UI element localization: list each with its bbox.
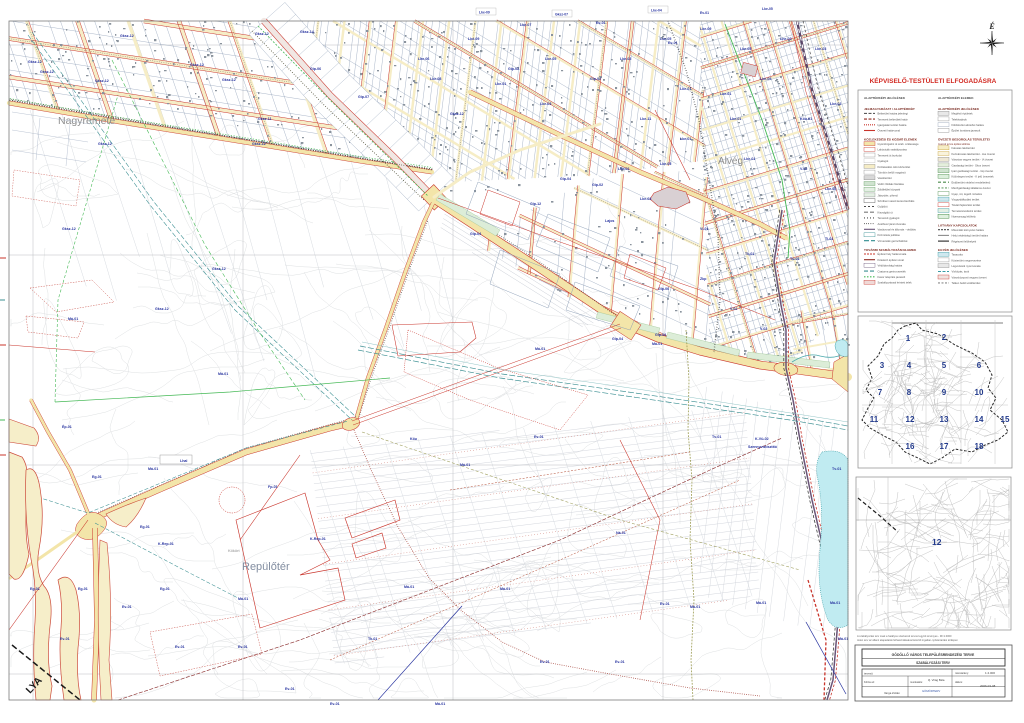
svg-text:EGYÉB JELÖLÉSEK: EGYÉB JELÖLÉSEK — [938, 247, 969, 252]
svg-text:Ev-01: Ev-01 — [238, 645, 248, 649]
svg-text:Ná-01: Ná-01 — [616, 531, 626, 535]
svg-text:Ép-01: Ép-01 — [62, 424, 72, 429]
svg-text:Lke-03: Lke-03 — [640, 197, 651, 201]
svg-text:Ev-01: Ev-01 — [615, 660, 625, 664]
svg-text:Má-01: Má-01 — [148, 467, 158, 471]
svg-text:Lke-01: Lke-01 — [744, 157, 755, 161]
svg-text:Lke-01: Lke-01 — [680, 87, 691, 91]
svg-text:Lke-06: Lke-06 — [418, 57, 429, 61]
svg-text:Eg-01: Eg-01 — [140, 525, 150, 529]
svg-text:Ev-01: Ev-01 — [60, 637, 70, 641]
svg-text:Fp-01: Fp-01 — [268, 485, 278, 489]
svg-text:Lke-09: Lke-09 — [468, 37, 479, 41]
svg-text:Ti-01: Ti-01 — [825, 237, 833, 241]
svg-text:ALAPTÉRKÉPI JELÖLÉSEK: ALAPTÉRKÉPI JELÖLÉSEK — [864, 95, 906, 100]
svg-text:Övezeti határvonal: Övezeti határvonal — [878, 129, 901, 133]
svg-text:Gazdasági terület - Gksz öveze: Gazdasági terület - Gksz övezet — [952, 163, 990, 167]
svg-text:8: 8 — [907, 388, 912, 397]
svg-text:Lke-01: Lke-01 — [680, 137, 691, 141]
svg-text:Gip-06: Gip-06 — [310, 67, 321, 71]
svg-text:Kiszolgáló út: Kiszolgáló út — [878, 210, 893, 214]
svg-text:V-02: V-02 — [760, 327, 767, 331]
svg-text:Védő zöldsáv fásítása: Védő zöldsáv fásítása — [878, 182, 905, 186]
svg-text:Gip-07: Gip-07 — [358, 95, 369, 99]
svg-text:Eg-01: Eg-01 — [160, 587, 170, 591]
svg-text:ÖVEZETI BESOROLÁS TERÜLETEI: ÖVEZETI BESOROLÁS TERÜLETEI — [938, 137, 990, 142]
svg-text:10: 10 — [975, 388, 984, 397]
svg-text:Lke-02: Lke-02 — [830, 102, 841, 106]
svg-text:Gip-06: Gip-06 — [658, 287, 669, 291]
svg-text:Má-01: Má-01 — [652, 342, 662, 346]
svg-text:Köu-01: Köu-01 — [800, 117, 812, 121]
svg-text:Lke-05: Lke-05 — [762, 7, 773, 11]
svg-text:Tervezett út burkolat: Tervezett út burkolat — [878, 153, 902, 157]
svg-text:Má-01: Má-01 — [756, 601, 766, 605]
svg-text:Ev-01: Ev-01 — [596, 21, 606, 25]
svg-text:Nyersanyag lelőhely: Nyersanyag lelőhely — [952, 215, 977, 219]
svg-text:Eg-01: Eg-01 — [78, 587, 88, 591]
svg-text:TOVÁBBI SZABÁLYOZÁSI ELEMEK: TOVÁBBI SZABÁLYOZÁSI ELEMEK — [864, 247, 917, 252]
svg-text:Gksz-12: Gksz-12 — [95, 79, 109, 83]
svg-text:Gksz-12: Gksz-12 — [190, 63, 204, 67]
svg-text:Lke-05: Lke-05 — [660, 162, 671, 166]
svg-text:Lke-08: Lke-08 — [430, 77, 441, 81]
svg-text:Má-01: Má-01 — [838, 637, 848, 641]
svg-text:9: 9 — [942, 388, 947, 397]
svg-text:Körös-sz:: Körös-sz: — [864, 680, 875, 684]
svg-text:6: 6 — [977, 361, 982, 370]
svg-text:Lke-01: Lke-01 — [495, 82, 506, 86]
svg-text:Gksz-12: Gksz-12 — [28, 60, 42, 64]
svg-text:Lke-02: Lke-02 — [618, 167, 629, 171]
svg-text:Tervezett gyalogút: Tervezett gyalogút — [878, 216, 900, 220]
svg-text:Gksz-12: Gksz-12 — [222, 78, 236, 82]
svg-text:Gksz-14: Gksz-14 — [300, 30, 314, 34]
svg-text:14: 14 — [975, 415, 984, 424]
svg-text:Telken belüli védőterület: Telken belüli védőterület — [952, 281, 981, 285]
svg-text:K-Vü-02: K-Vü-02 — [755, 437, 769, 441]
svg-text:Közműsáv jelölése: Közműsáv jelölése — [878, 233, 901, 237]
svg-text:Gksz-12: Gksz-12 — [252, 142, 266, 146]
svg-text:Gksz-12: Gksz-12 — [450, 112, 464, 116]
svg-text:Légvezeték nyomvonala: Légvezeték nyomvonala — [952, 264, 981, 268]
svg-text:Lke-09: Lke-09 — [700, 27, 711, 31]
svg-text:Nagyremete: Nagyremete — [58, 115, 115, 127]
svg-text:Má-01: Má-01 — [500, 587, 510, 591]
svg-text:Lke-01: Lke-01 — [720, 92, 731, 96]
svg-text:Belterület határa jelenlegi: Belterület határa jelenlegi — [878, 112, 909, 116]
svg-text:Lke-09: Lke-09 — [479, 11, 490, 15]
svg-text:Eg-01: Eg-01 — [30, 587, 40, 591]
svg-text:Tömbön belüli magánút: Tömbön belüli magánút — [878, 171, 906, 175]
svg-text:Szennyvíztisztító: Szennyvíztisztító — [748, 445, 778, 449]
svg-text:Lke-03: Lke-03 — [620, 57, 631, 61]
svg-text:7: 7 — [878, 388, 883, 397]
svg-text:Tv-01: Tv-01 — [832, 467, 841, 471]
svg-text:Gksz-11: Gksz-11 — [258, 117, 272, 121]
svg-text:Zkp: Zkp — [700, 277, 707, 281]
svg-text:LÁTVÁNY KAPCSOLATOK: LÁTVÁNY KAPCSOLATOK — [938, 223, 978, 228]
svg-text:Játszótér, pihenő: Játszótér, pihenő — [878, 193, 899, 197]
svg-text:Alvég: Alvég — [718, 156, 743, 167]
svg-text:Gip-02: Gip-02 — [508, 67, 519, 71]
svg-text:Védőtávolság határa: Védőtávolság határa — [878, 264, 903, 268]
svg-text:Lhal: Lhal — [180, 459, 187, 463]
svg-text:Tv-01: Tv-01 — [712, 435, 721, 439]
svg-text:11: 11 — [870, 415, 879, 424]
svg-text:Má-01: Má-01 — [460, 463, 470, 467]
svg-text:2006-03-08: 2006-03-08 — [980, 684, 996, 688]
svg-text:ALAPTÉRKÉPI ELEMEK: ALAPTÉRKÉPI ELEMEK — [938, 95, 974, 100]
svg-text:Meglévő épületek: Meglévő épületek — [952, 112, 974, 116]
svg-text:Közterület megnevezése: Közterület megnevezése — [952, 258, 982, 262]
svg-text:4: 4 — [907, 361, 912, 370]
svg-text:Tk-01: Tk-01 — [745, 252, 754, 256]
svg-text:Szintbeni vasúti kereszteződés: Szintbeni vasúti kereszteződés — [878, 199, 916, 203]
svg-text:Telekhatárok: Telekhatárok — [952, 117, 968, 121]
svg-text:Lke-01: Lke-01 — [730, 117, 741, 121]
svg-text:ifj. Virág Béla: ifj. Virág Béla — [928, 678, 945, 682]
svg-text:Ev-01: Ev-01 — [700, 11, 709, 15]
svg-text:Má-01: Má-01 — [404, 585, 414, 589]
svg-text:Vasútterület: Vasútterület — [878, 176, 892, 180]
svg-text:Gksz-12: Gksz-12 — [98, 142, 112, 146]
svg-text:Lke-08: Lke-08 — [825, 187, 836, 191]
svg-text:Ev-01: Ev-01 — [330, 702, 340, 706]
svg-text:5: 5 — [942, 361, 947, 370]
svg-text:A szabályozási terv csak a hat: A szabályozási terv csak a hatályos szer… — [857, 634, 952, 638]
svg-text:13: 13 — [940, 415, 949, 424]
svg-text:GÖMÖRTERV: GÖMÖRTERV — [922, 689, 940, 693]
svg-text:1:4.000: 1:4.000 — [985, 671, 995, 675]
svg-text:munkatárs:: munkatárs: — [910, 680, 923, 684]
svg-text:12: 12 — [932, 537, 942, 547]
svg-text:Ev-01: Ev-01 — [175, 645, 185, 649]
svg-text:Gksz-12: Gksz-12 — [255, 32, 269, 36]
svg-text:Eg-01: Eg-01 — [92, 475, 102, 479]
svg-text:Má-01: Má-01 — [435, 702, 445, 706]
svg-text:Tavacska: Tavacska — [952, 253, 964, 257]
svg-text:tervező:: tervező: — [864, 672, 874, 676]
svg-text:Csatorna gerincvezeték: Csatorna gerincvezeték — [878, 269, 907, 273]
svg-text:Gip-04: Gip-04 — [612, 337, 623, 341]
svg-text:Közlekedési célú közterület: Közlekedési célú közterület — [878, 165, 911, 169]
svg-text:Má-01: Má-01 — [690, 605, 700, 609]
svg-text:Kertvárosias lakóterület - Lke: Kertvárosias lakóterület - Lke övezet — [952, 152, 996, 156]
svg-text:Jelen terv az állami alapadato: Jelen terv az állami alapadatok felhaszn… — [857, 638, 958, 642]
svg-text:Városias vegyes terület - Vt ö: Városias vegyes terület - Vt övezet — [952, 158, 994, 162]
svg-text:Lke-03: Lke-03 — [815, 47, 826, 51]
svg-text:Helyi védettségű terület határ: Helyi védettségű terület határa — [952, 234, 989, 238]
svg-text:Zöldfelület közpark: Zöldfelület közpark — [878, 188, 901, 192]
svg-text:Ev-01: Ev-01 — [668, 41, 678, 45]
svg-text:Kötelező építési vonal: Kötelező építési vonal — [878, 258, 905, 262]
svg-text:3: 3 — [880, 361, 885, 370]
svg-text:Ev-01: Ev-01 — [534, 435, 544, 439]
svg-text:Vízgazdálkodási terület: Vízgazdálkodási terület — [952, 198, 980, 202]
svg-text:Ev-01: Ev-01 — [660, 602, 670, 606]
svg-text:Lke-11: Lke-11 — [640, 117, 651, 121]
svg-text:Má-01: Má-01 — [830, 601, 840, 605]
svg-text:Vízfolyás, árok: Vízfolyás, árok — [952, 270, 970, 274]
svg-text:Régészeti lelőhelyek: Régészeti lelőhelyek — [952, 239, 977, 243]
svg-text:K-Rep-01: K-Rep-01 — [310, 537, 326, 541]
svg-text:Városközponti vegyes övezet: Városközponti vegyes övezet — [952, 275, 987, 279]
svg-text:Természetvédelmi terület: Természetvédelmi terület — [952, 209, 982, 213]
svg-text:GÖDÖLLŐ VÁROS TELEPÜLÉSRENDEZÉ: GÖDÖLLŐ VÁROS TELEPÜLÉSRENDEZÉSI TERVE — [892, 652, 975, 657]
svg-text:Lke-03: Lke-03 — [540, 102, 551, 106]
svg-text:Gip-04: Gip-04 — [560, 177, 571, 181]
svg-text:Szabályozással érintett telek: Szabályozással érintett telek — [878, 281, 913, 285]
svg-text:V-02: V-02 — [730, 307, 737, 311]
svg-text:Tü-01: Tü-01 — [790, 257, 800, 261]
svg-text:K-Rep-01: K-Rep-01 — [158, 542, 174, 546]
svg-text:Lke-05: Lke-05 — [760, 77, 771, 81]
svg-text:Köu: Köu — [410, 437, 417, 441]
svg-text:Lakóutcák szabályozása: Lakóutcák szabályozása — [878, 148, 908, 152]
svg-text:Vi-01: Vi-01 — [700, 227, 709, 231]
svg-text:Ev-01: Ev-01 — [122, 605, 132, 609]
svg-text:Fasor telepítés javasolt: Fasor telepítés javasolt — [878, 275, 906, 279]
svg-text:Lke-05: Lke-05 — [545, 57, 556, 61]
svg-text:Lke-05: Lke-05 — [740, 47, 751, 51]
svg-text:Kökört: Kökört — [228, 548, 240, 553]
svg-text:Gyűjtőút: Gyűjtőút — [878, 205, 888, 209]
svg-text:V-02: V-02 — [800, 167, 807, 171]
svg-text:Lhe-03: Lhe-03 — [780, 37, 792, 41]
svg-text:Lke-04: Lke-04 — [651, 9, 662, 13]
svg-text:Gyorsforgalmi út szab. széless: Gyorsforgalmi út szab. szélessége — [878, 142, 920, 146]
svg-text:JELMAGYARÁZAT / ALAPTÉRKÉP: JELMAGYARÁZAT / ALAPTÉRKÉP — [864, 106, 915, 111]
svg-text:Vasútvonal és állomás - védőtá: Vasútvonal és állomás - védőtáv — [878, 228, 917, 232]
svg-text:Gksz-12: Gksz-12 — [212, 267, 226, 271]
svg-text:15: 15 — [1001, 415, 1010, 424]
svg-text:Má-01: Má-01 — [535, 347, 545, 351]
svg-text:méretarány:: méretarány: — [955, 671, 969, 675]
svg-text:Ipari gazdasági terület - Gip: Ipari gazdasági terület - Gip övezet — [952, 169, 994, 173]
svg-text:Lajos: Lajos — [605, 219, 614, 223]
svg-text:Tervezett belterületi határ: Tervezett belterületi határ — [878, 117, 908, 121]
svg-text:1: 1 — [906, 334, 911, 343]
svg-text:Gksz-07: Gksz-07 — [555, 13, 568, 17]
svg-text:Ev-01: Ev-01 — [285, 687, 295, 691]
svg-text:Gip-04: Gip-04 — [655, 333, 666, 337]
svg-text:övezeti jel és építési előírás: övezeti jel és építési előírás — [938, 142, 971, 146]
svg-text:Mezőgazdasági általános övezet: Mezőgazdasági általános övezet — [952, 186, 991, 190]
svg-text:Gip-12: Gip-12 — [530, 202, 541, 206]
svg-text:Ev-01: Ev-01 — [540, 660, 550, 664]
svg-text:É: É — [988, 21, 994, 31]
svg-text:17: 17 — [940, 442, 949, 451]
svg-text:16: 16 — [906, 442, 915, 451]
svg-text:Tk-01: Tk-01 — [368, 637, 377, 641]
svg-text:Gyep, rét, legelő művelés: Gyep, rét, legelő művelés — [952, 192, 983, 196]
svg-text:Vízvezeték gerinchálózat: Vízvezeték gerinchálózat — [878, 239, 908, 243]
svg-text:Földrészlet alrészlet határa: Földrészlet alrészlet határa — [952, 123, 985, 127]
svg-text:Távlati fejlesztési terület: Távlati fejlesztési terület — [952, 203, 981, 207]
svg-text:Varga Zoltán: Varga Zoltán — [884, 691, 900, 695]
svg-text:KÉPVISELŐ-TESTÜLETI ELFOGADÁSR: KÉPVISELŐ-TESTÜLETI ELFOGADÁSRA — [870, 76, 997, 85]
svg-text:dátum:: dátum: — [955, 680, 963, 684]
svg-text:Gksz-12: Gksz-12 — [155, 307, 169, 311]
svg-text:Gip-04: Gip-04 — [470, 232, 481, 236]
svg-text:SZABÁLYOZÁSI TERV: SZABÁLYOZÁSI TERV — [916, 660, 951, 665]
svg-text:Erdőterület védelmi rendelteté: Erdőterület védelmi rendeltetésű — [952, 180, 991, 184]
svg-text:Igazgatási terület határa: Igazgatási terület határa — [878, 123, 907, 127]
svg-text:2: 2 — [942, 333, 947, 342]
svg-text:Lke-07: Lke-07 — [520, 23, 531, 27]
svg-text:Gksz-12: Gksz-12 — [62, 227, 76, 231]
svg-text:12: 12 — [906, 415, 915, 424]
svg-text:Gksz-12: Gksz-12 — [40, 70, 54, 74]
svg-text:Autóbusz járat útvonala: Autóbusz járat útvonala — [878, 222, 907, 226]
svg-text:Gip-02: Gip-02 — [592, 183, 603, 187]
svg-text:Repülőtér: Repülőtér — [242, 561, 290, 573]
svg-text:Má-01: Má-01 — [238, 597, 248, 601]
svg-text:Különleges terület - K jelű öv: Különleges terület - K jelű övezetek — [952, 175, 995, 179]
svg-text:18: 18 — [975, 442, 984, 451]
svg-text:Gksz-12: Gksz-12 — [120, 34, 134, 38]
svg-text:Má-01: Má-01 — [218, 372, 228, 376]
svg-text:Gyalogút: Gyalogút — [878, 159, 889, 163]
svg-text:Műemléki környezet határa: Műemléki környezet határa — [952, 228, 985, 232]
svg-text:Falusias lakóterület: Falusias lakóterület — [952, 146, 975, 150]
svg-text:KÖZLEKEDÉSI ÉS KÖZMŰ ELEMEK: KÖZLEKEDÉSI ÉS KÖZMŰ ELEMEK — [864, 137, 918, 142]
svg-text:ALAPTÉRKÉPI JELÖLÉSEK: ALAPTÉRKÉPI JELÖLÉSEK — [938, 106, 980, 111]
svg-text:Gip-02: Gip-02 — [590, 77, 601, 81]
